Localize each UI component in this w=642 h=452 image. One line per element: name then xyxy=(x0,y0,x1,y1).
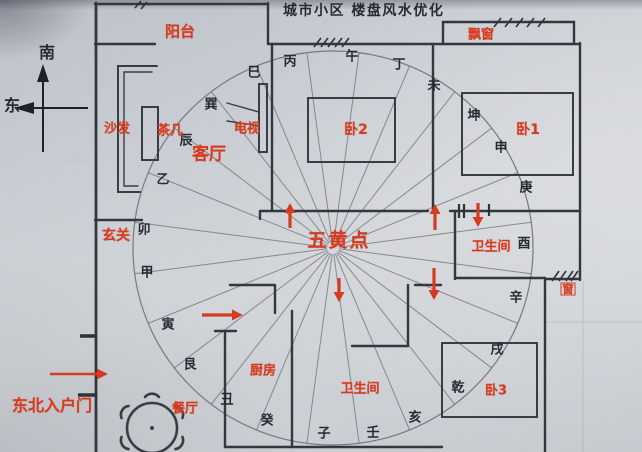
ring-label-0: 午 xyxy=(345,51,358,64)
wall-bay-window xyxy=(443,22,574,43)
dining-chair xyxy=(119,404,129,418)
room-label-bedroom-2: 卧2 xyxy=(344,123,368,137)
compass-label-south: 南 xyxy=(39,45,55,61)
compass-label-east: 东 xyxy=(4,98,20,114)
dining-chair xyxy=(176,437,186,451)
ring-label-17: 甲 xyxy=(140,267,153,280)
room-label-dining-room: 餐厅 xyxy=(172,403,198,416)
ring-label-10: 亥 xyxy=(408,412,421,425)
sector-ray xyxy=(338,252,492,368)
wall-ticks-left xyxy=(78,336,97,395)
room-label-bathroom-south: 卫生间 xyxy=(340,383,379,396)
ring-label-19: 乙 xyxy=(156,174,169,187)
sector-ray xyxy=(335,254,409,430)
ring-label-16: 寅 xyxy=(161,319,174,332)
room-label-living-room: 客厅 xyxy=(192,147,226,164)
ring-label-8: 戌 xyxy=(490,344,503,357)
sector-ray xyxy=(174,252,328,368)
ring-label-15: 艮 xyxy=(183,359,196,372)
arrow-down-bathroom xyxy=(473,203,484,227)
room-label-balcony: 阳台 xyxy=(165,25,195,40)
compass-arrow-south-icon xyxy=(37,64,49,82)
ring-label-1: 丁 xyxy=(392,59,405,72)
arrow-down-mid xyxy=(334,278,345,302)
ring-label-13: 癸 xyxy=(260,415,273,428)
room-label-sofa: 沙发 xyxy=(104,123,130,136)
floorplan-photo: 城市小区 楼盘风水优化 南 东 五黄点 午丁未坤申庚酉辛戌乾亥壬子癸丑艮寅甲卯乙… xyxy=(0,0,642,452)
ring-label-23: 丙 xyxy=(283,56,296,69)
ring-label-11: 壬 xyxy=(366,427,379,440)
room-label-entrance-door: 东北入户门 xyxy=(12,398,92,414)
sector-ray xyxy=(211,92,329,244)
ring-label-18: 卯 xyxy=(137,224,150,237)
room-label-tea-table: 茶几 xyxy=(157,125,183,138)
room-label-kitchen: 厨房 xyxy=(250,365,276,378)
hatches xyxy=(78,1,578,395)
sector-ray xyxy=(211,253,329,405)
page-title: 城市小区 楼盘风水优化 xyxy=(283,4,444,18)
room-label-bedroom-3: 卧3 xyxy=(485,385,507,398)
sector-ray xyxy=(335,66,409,242)
ring-label-9: 乾 xyxy=(451,382,464,395)
arrow-right-entrance xyxy=(50,369,108,380)
window-hatch-top xyxy=(314,38,349,47)
ring-label-2: 未 xyxy=(427,80,440,93)
sector-ray xyxy=(135,249,327,274)
orientation-compass xyxy=(14,64,88,152)
sector-ray xyxy=(307,53,332,242)
room-label-bay-window: 飘窗 xyxy=(468,29,494,42)
ring-label-21: 巽 xyxy=(204,99,217,112)
ring-label-4: 申 xyxy=(494,142,507,155)
ring-label-22: 巳 xyxy=(247,67,260,80)
sector-ray xyxy=(135,222,327,247)
sector-ray xyxy=(148,173,327,246)
room-label-window-east: 窗 xyxy=(561,283,576,296)
dining-chair xyxy=(145,394,159,397)
dining-chair xyxy=(119,437,129,451)
sector-ray xyxy=(256,254,330,430)
ring-label-5: 庚 xyxy=(519,182,532,195)
room-label-bedroom-1: 卧1 xyxy=(516,123,540,137)
arrow-right-kitchen xyxy=(202,310,243,321)
tv-shape xyxy=(259,84,267,152)
room-label-tv: 电视 xyxy=(234,123,260,136)
floorplan-drawing xyxy=(0,0,642,452)
arrow-up-center xyxy=(285,203,296,228)
sector-ray xyxy=(334,53,359,242)
ring-label-14: 丑 xyxy=(220,394,233,407)
ring-label-7: 辛 xyxy=(509,292,522,305)
sector-ray xyxy=(307,254,332,443)
room-label-entry-hall: 玄关 xyxy=(102,229,130,243)
ring-label-3: 坤 xyxy=(467,110,480,123)
wall-kitchen-left xyxy=(215,331,236,447)
walls xyxy=(95,3,580,452)
five-yellow-point-label: 五黄点 xyxy=(307,232,370,251)
ring-label-6: 酉 xyxy=(517,238,530,251)
room-label-bathroom-east: 卫生间 xyxy=(471,241,510,254)
sector-ray xyxy=(338,128,492,244)
tea-table-shape xyxy=(142,107,158,160)
ring-label-12: 子 xyxy=(317,428,330,441)
sector-ray xyxy=(339,250,518,323)
